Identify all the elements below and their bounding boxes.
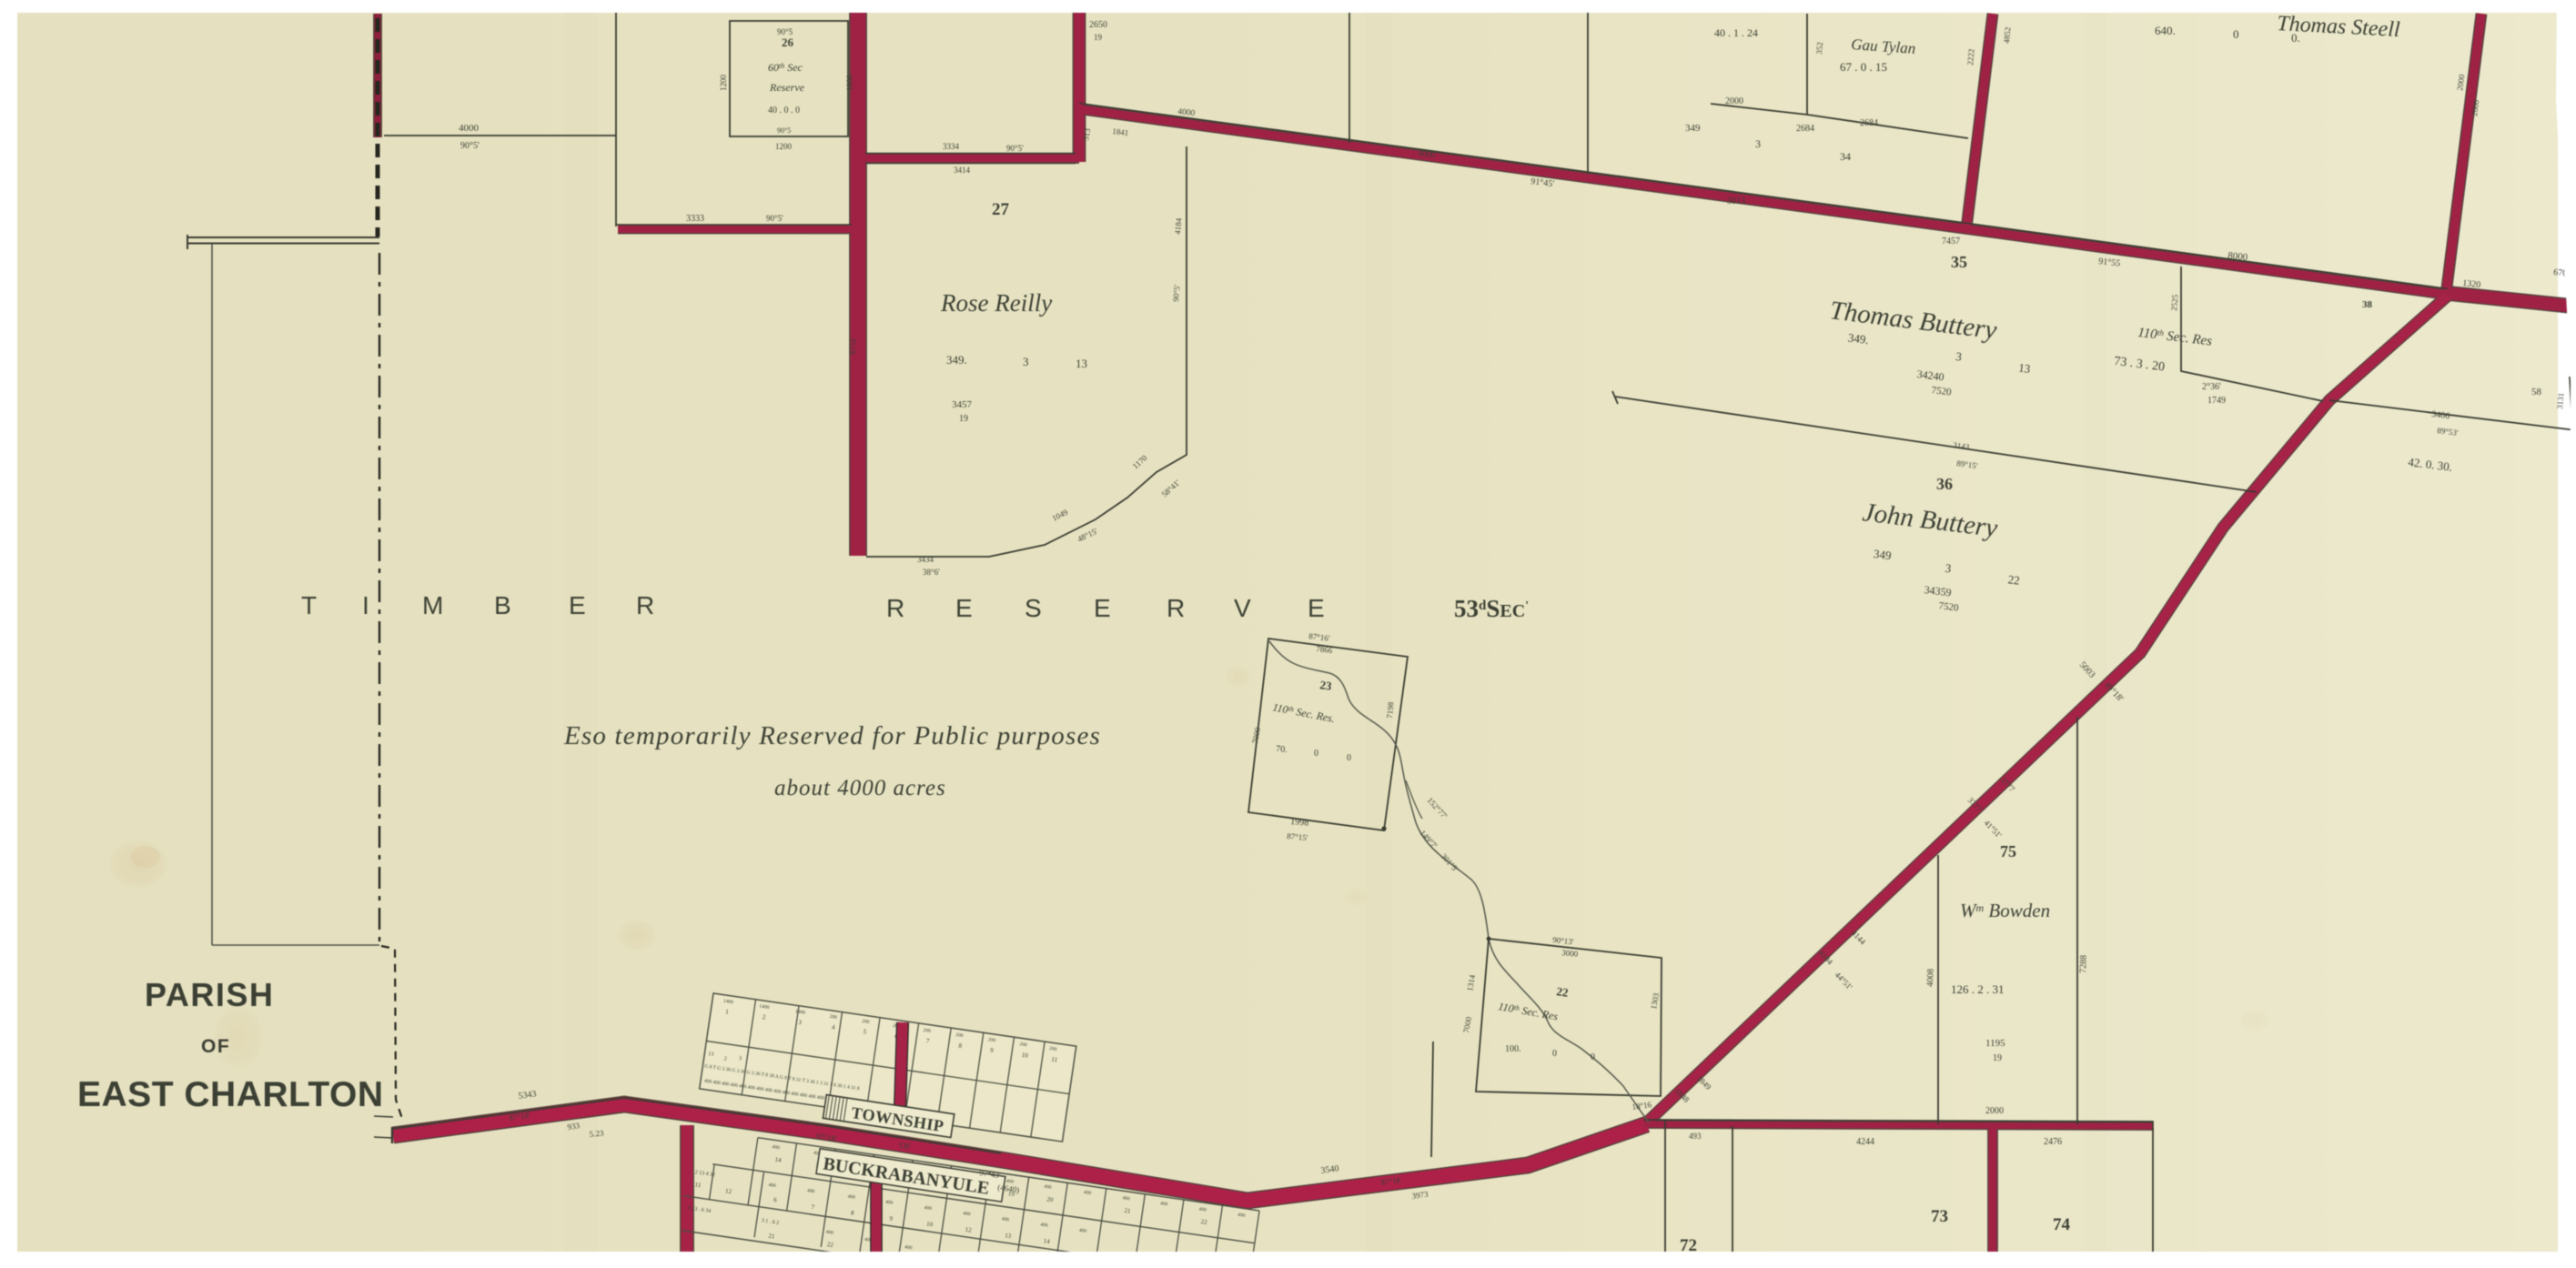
svg-text:3333: 3333 [686,214,704,224]
svg-text:400: 400 [1237,1213,1246,1219]
svg-text:400: 400 [1083,1190,1091,1196]
svg-text:4008: 4008 [1925,969,1936,987]
svg-text:75: 75 [2000,842,2016,860]
svg-text:87°15': 87°15' [1287,831,1308,842]
svg-text:1200: 1200 [719,75,728,92]
svg-text:1000: 1000 [845,75,854,92]
svg-text:3: 3 [1023,355,1029,368]
svg-text:M: M [422,591,443,619]
svg-text:about 4000 acres: about 4000 acres [774,776,946,800]
svg-text:3000: 3000 [1561,948,1579,959]
svg-text:3013: 3013 [1727,196,1745,206]
svg-text:933: 933 [567,1121,581,1132]
svg-text:100.: 100. [1505,1044,1521,1054]
svg-text:S: S [1025,594,1042,622]
svg-text:B: B [494,591,511,619]
svg-text:E: E [955,594,973,622]
svg-text:4000: 4000 [459,123,480,134]
svg-text:Wm Bowden: Wm Bowden [1960,900,2050,921]
svg-text:3334: 3334 [943,142,960,151]
svg-text:200: 200 [862,1019,870,1025]
svg-text:0: 0 [1314,749,1318,759]
svg-text:2684: 2684 [1796,124,1814,134]
svg-text:3414: 3414 [954,166,971,175]
svg-text:EAST CHARLTON: EAST CHARLTON [77,1075,384,1114]
svg-text:349.: 349. [946,353,967,367]
svg-text:90°5': 90°5' [1171,284,1182,302]
svg-text:200: 200 [987,1037,995,1043]
svg-text:27: 27 [992,200,1010,219]
svg-text:400: 400 [768,1182,776,1189]
svg-text:126 . 2 . 31: 126 . 2 . 31 [1951,982,2005,996]
svg-text:200: 200 [829,1014,837,1021]
svg-text:8000: 8000 [2227,250,2249,263]
svg-text:23: 23 [1319,678,1333,693]
svg-text:4244: 4244 [1856,1137,1874,1147]
svg-text:349: 349 [1685,123,1701,134]
svg-text:3131: 3131 [2555,392,2566,409]
svg-text:400: 400 [885,1200,894,1206]
svg-text:1200: 1200 [775,142,793,151]
svg-text:400: 400 [1078,1228,1086,1234]
svg-text:2°36': 2°36' [2202,382,2221,392]
svg-text:13: 13 [2017,361,2031,376]
svg-text:2000: 2000 [1985,1106,2004,1116]
svg-text:400: 400 [1122,1195,1130,1202]
svg-text:70.: 70. [1276,744,1288,755]
svg-text:90°5': 90°5' [1006,144,1024,153]
svg-text:3: 3 [1755,137,1761,150]
svg-text:PARISH: PARISH [145,976,274,1013]
svg-text:640.: 640. [2155,24,2176,37]
svg-text:5.23: 5.23 [589,1128,604,1139]
svg-text:349: 349 [1873,547,1892,562]
svg-text:Eso temporarily Reserved for P: Eso temporarily Reserved for Public purp… [563,721,1101,750]
svg-text:0: 0 [1591,1052,1595,1062]
svg-text:40 . 0 . 0: 40 . 0 . 0 [768,106,800,116]
svg-text:493: 493 [1689,1132,1702,1141]
svg-text:7198: 7198 [1385,701,1396,719]
svg-text:2222: 2222 [1965,48,1976,65]
svg-text:E: E [569,591,586,619]
svg-text:13: 13 [708,1052,714,1058]
svg-text:4184: 4184 [1173,217,1184,235]
svg-text:Rose Reilly: Rose Reilly [940,289,1052,317]
svg-text:90°5': 90°5' [766,214,783,223]
svg-text:0: 0 [1347,753,1351,763]
svg-text:60th Sec: 60th Sec [768,61,803,74]
svg-text:73: 73 [1931,1207,1948,1226]
svg-text:3434: 3434 [917,555,934,564]
svg-text:T: T [301,591,317,619]
svg-text:OF: OF [201,1036,230,1057]
svg-text:R: R [636,591,654,619]
svg-text:R: R [1167,594,1185,622]
svg-text:4752: 4752 [848,338,857,355]
svg-text:90°5: 90°5 [777,27,793,36]
svg-text:38°6': 38°6' [923,568,940,577]
svg-text:OF: OF [899,1141,913,1152]
svg-text:22: 22 [2007,572,2021,587]
svg-text:I: I [362,591,369,619]
svg-text:400: 400 [807,1188,815,1194]
svg-text:7457: 7457 [1942,236,1960,247]
svg-text:1998: 1998 [1290,817,1309,829]
svg-text:13: 13 [1076,357,1087,370]
svg-text:1195: 1195 [1985,1038,2005,1049]
svg-text:0: 0 [2233,27,2239,41]
svg-text:74: 74 [2053,1215,2071,1234]
svg-text:58: 58 [2531,387,2542,398]
svg-text:3457: 3457 [952,399,973,410]
svg-text:400: 400 [963,1211,971,1217]
svg-text:2684: 2684 [1860,118,1878,128]
svg-text:400: 400 [825,1230,833,1236]
svg-text:R: R [886,594,904,622]
svg-text:0.: 0. [2291,31,2300,45]
svg-text:200: 200 [923,1028,931,1034]
svg-text:90°5: 90°5 [777,126,791,135]
svg-text:Reserve: Reserve [769,81,805,94]
svg-text:1320: 1320 [2462,278,2481,290]
svg-text:90°5': 90°5' [460,141,480,151]
svg-text:4852: 4852 [2002,26,2013,44]
svg-text:19: 19 [1094,33,1103,42]
svg-text:400: 400 [1044,1184,1052,1191]
svg-text:2525: 2525 [2169,294,2180,311]
svg-text:400: 400 [924,1205,932,1212]
svg-text:2000: 2000 [1725,96,1743,106]
svg-text:2650: 2650 [1089,20,1107,30]
svg-text:400: 400 [772,1144,780,1151]
svg-text:19: 19 [959,414,968,424]
svg-text:400: 400 [1198,1207,1207,1213]
svg-text:22: 22 [1556,984,1570,1000]
svg-text:0: 0 [1552,1049,1557,1059]
svg-text:19: 19 [1993,1053,2002,1063]
svg-text:400: 400 [904,1244,913,1251]
svg-text:352: 352 [1814,42,1824,55]
svg-text:V: V [1234,594,1251,622]
svg-text:1749: 1749 [2207,396,2226,406]
svg-text:36: 36 [1936,475,1953,493]
svg-text:2476: 2476 [2044,1137,2062,1147]
svg-text:7288: 7288 [2078,955,2089,973]
svg-text:38: 38 [2362,299,2373,310]
svg-text:400: 400 [1040,1223,1048,1229]
svg-text:34: 34 [1840,150,1851,163]
svg-text:400: 400 [1160,1201,1168,1207]
svg-text:400: 400 [847,1194,855,1201]
svg-text:400: 400 [1001,1216,1009,1223]
svg-text:40 . 1 . 24: 40 . 1 . 24 [1714,26,1758,39]
svg-text:E: E [1094,594,1111,622]
svg-text:200: 200 [1019,1042,1027,1048]
svg-text:349.: 349. [1847,330,1869,347]
svg-text:26: 26 [782,35,794,49]
svg-text:200: 200 [955,1032,964,1039]
svg-text:35: 35 [1951,253,1967,271]
svg-text:200: 200 [1049,1046,1057,1052]
svg-text:67 . 0 . 15: 67 . 0 . 15 [1840,60,1887,74]
svg-text:E: E [1308,594,1325,622]
